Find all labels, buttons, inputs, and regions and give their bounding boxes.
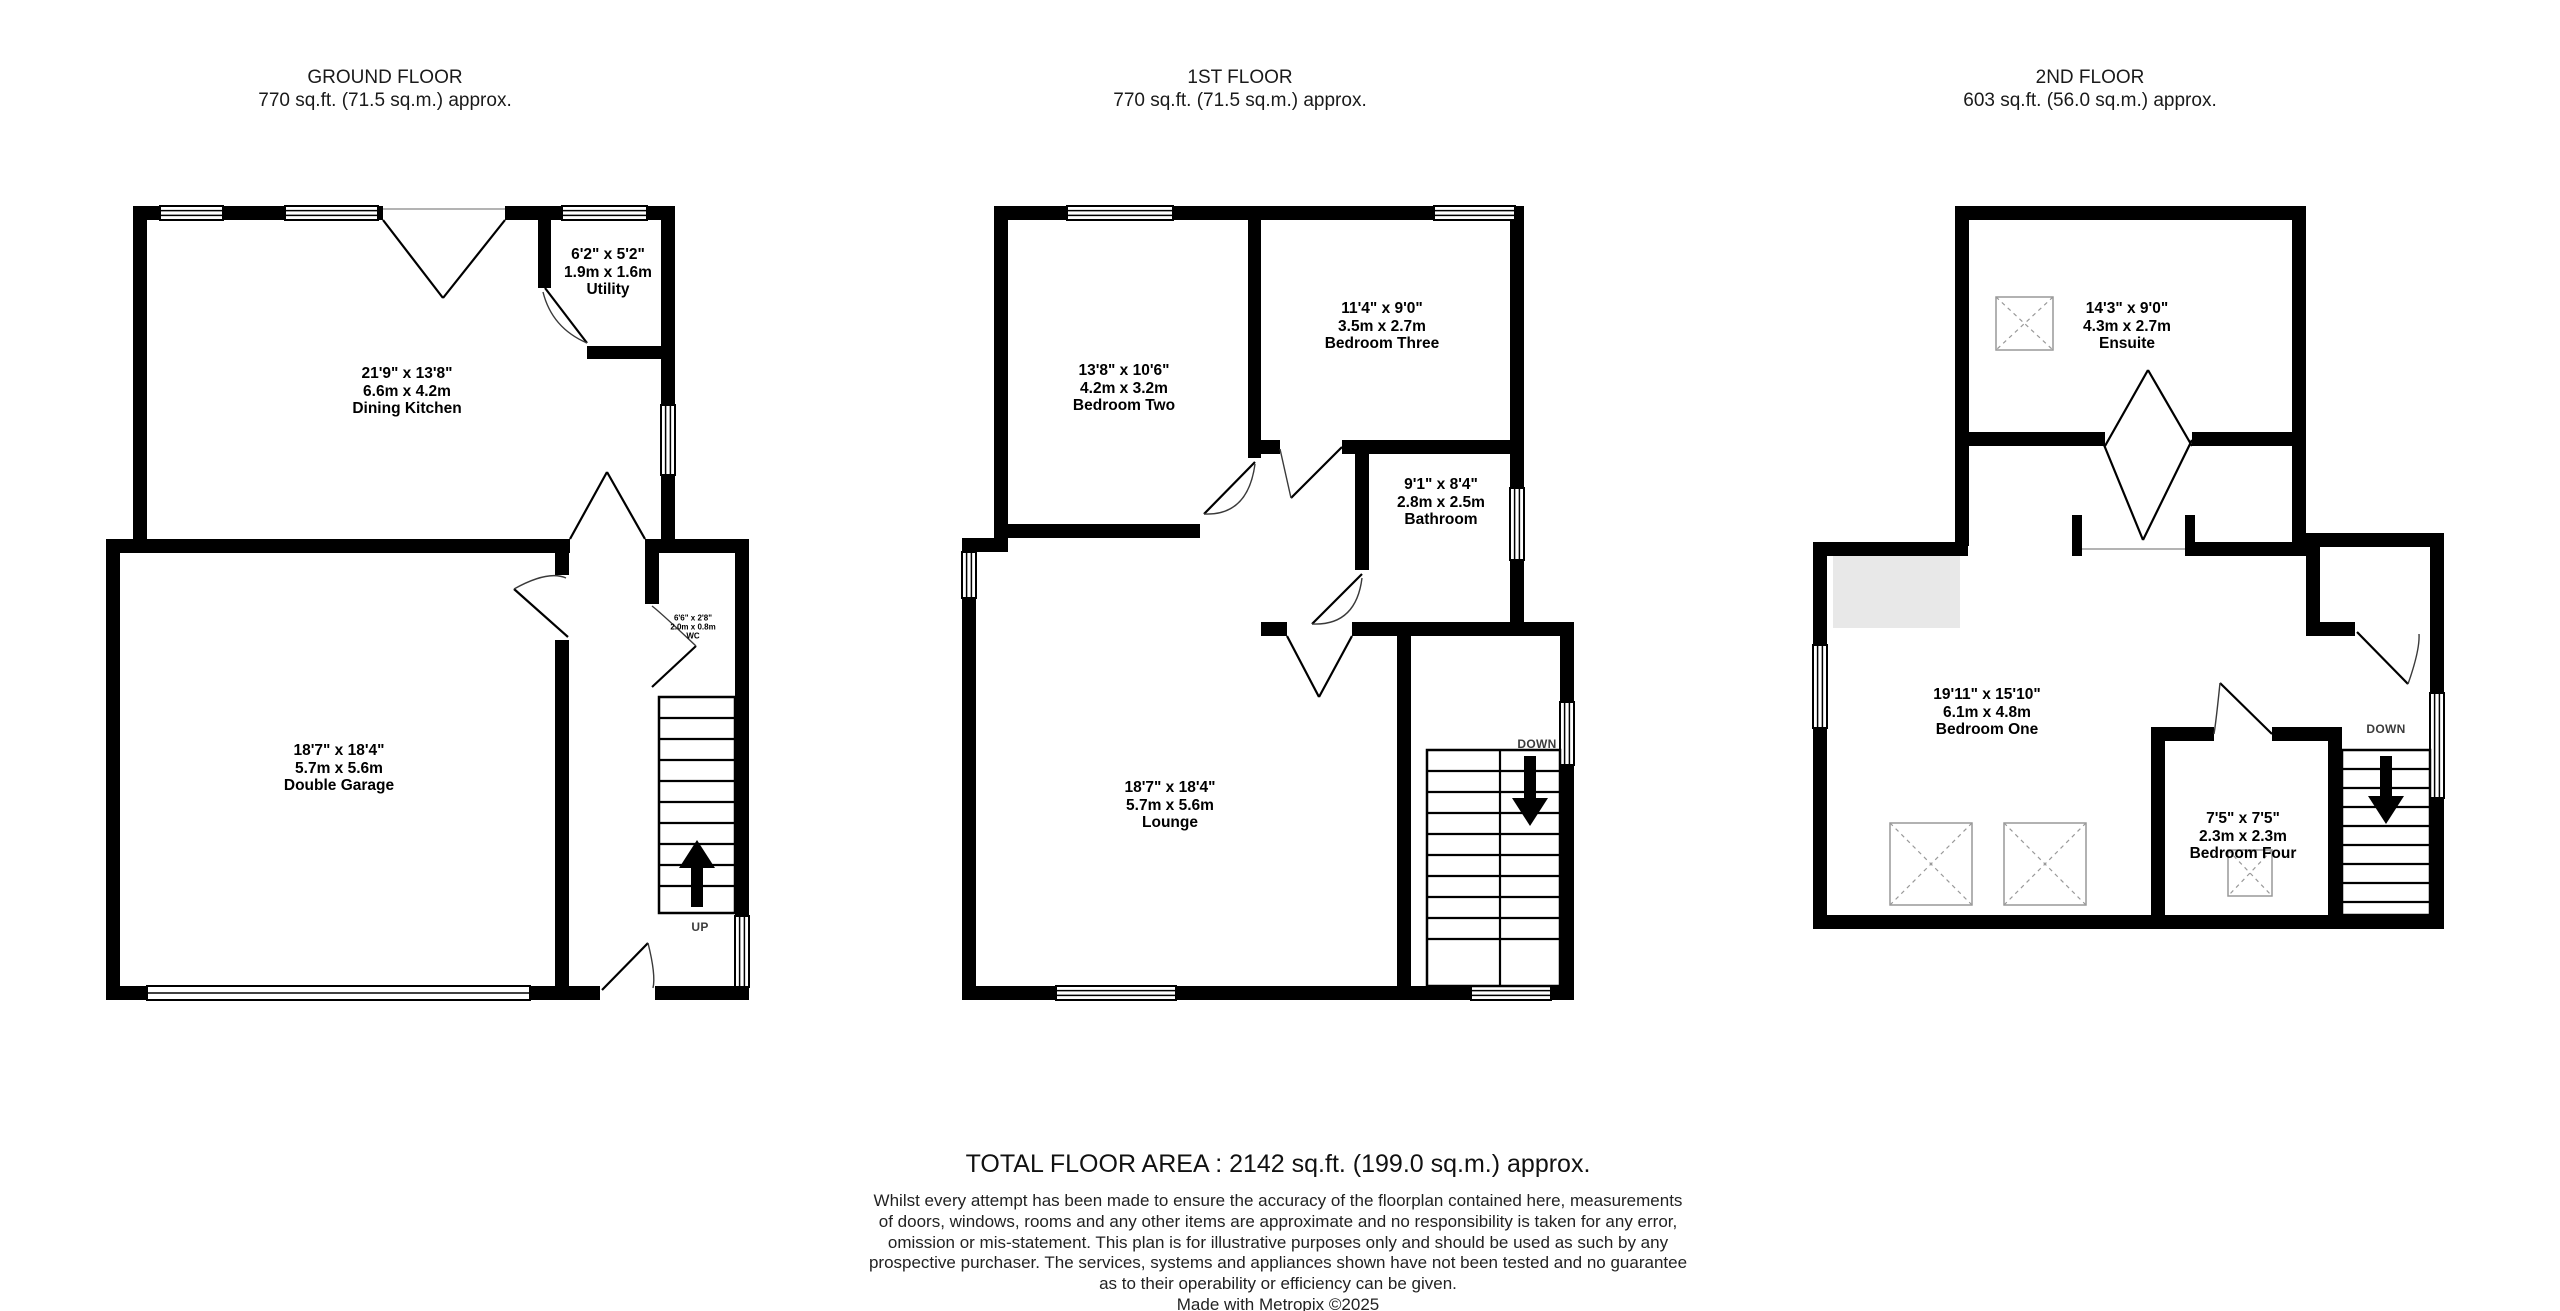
ground-floor-title-area: 770 sq.ft. (71.5 sq.m.) approx. <box>258 89 511 112</box>
floorplan-page: GROUND FLOOR 770 sq.ft. (71.5 sq.m.) app… <box>0 0 2560 1311</box>
room-label-bedroom-four: 7'5" x 7'5" 2.3m x 2.3m Bedroom Four <box>2190 810 2297 863</box>
room-label-lounge: 18'7" x 18'4" 5.7m x 5.6m Lounge <box>1124 779 1215 832</box>
first-floor-title: 1ST FLOOR 770 sq.ft. (71.5 sq.m.) approx… <box>1113 66 1366 112</box>
skylight-icon <box>2004 823 2086 905</box>
room-label-bedroom-one: 19'11" x 15'10" 6.1m x 4.8m Bedroom One <box>1933 686 2040 739</box>
second-floor-stairs <box>2342 750 2430 915</box>
disclaimer-line: omission or mis-statement. This plan is … <box>869 1233 1687 1254</box>
room-label-ensuite: 14'3" x 9'0" 4.3m x 2.7m Ensuite <box>2083 300 2171 353</box>
credit-line: Made with Metropix ©2025 <box>869 1295 1687 1311</box>
footer: TOTAL FLOOR AREA : 2142 sq.ft. (199.0 sq… <box>869 1150 1687 1311</box>
skylight-icon <box>1996 297 2053 350</box>
ground-floor-walls <box>106 206 749 1000</box>
room-label-bathroom: 9'1" x 8'4" 2.8m x 2.5m Bathroom <box>1397 476 1485 529</box>
first-floor-plan <box>950 200 1650 1010</box>
first-floor-title-name: 1ST FLOOR <box>1113 66 1366 89</box>
total-floor-area: TOTAL FLOOR AREA : 2142 sq.ft. (199.0 sq… <box>869 1150 1687 1179</box>
first-floor-doors <box>1204 447 1362 697</box>
ground-floor-title: GROUND FLOOR 770 sq.ft. (71.5 sq.m.) app… <box>258 66 511 112</box>
room-label-wc: 6'6" x 2'8" 2.0m x 0.8m WC <box>670 614 715 641</box>
ground-stair-label: UP <box>691 920 708 934</box>
disclaimer-line: of doors, windows, rooms and any other i… <box>869 1212 1687 1233</box>
second-floor-title-area: 603 sq.ft. (56.0 sq.m.) approx. <box>1963 89 2216 112</box>
ground-floor-plan <box>100 200 780 1010</box>
room-label-double-garage: 18'7" x 18'4" 5.7m x 5.6m Double Garage <box>284 742 394 795</box>
second-floor-title-name: 2ND FLOOR <box>1963 66 2216 89</box>
second-stair-label: DOWN <box>2366 722 2405 736</box>
skylight-icon <box>1890 823 1972 905</box>
reduced-headroom-area <box>1833 556 1960 628</box>
ground-floor-title-name: GROUND FLOOR <box>258 66 511 89</box>
disclaimer-line: prospective purchaser. The services, sys… <box>869 1253 1687 1274</box>
first-floor-title-area: 770 sq.ft. (71.5 sq.m.) approx. <box>1113 89 1366 112</box>
room-label-utility: 6'2" x 5'2" 1.9m x 1.6m Utility <box>564 246 652 299</box>
first-floor-stairs <box>1427 750 1560 986</box>
disclaimer-line: as to their operability or efficiency ca… <box>869 1274 1687 1295</box>
disclaimer-line: Whilst every attempt has been made to en… <box>869 1191 1687 1212</box>
room-label-bedroom-two: 13'8" x 10'6" 4.2m x 3.2m Bedroom Two <box>1073 362 1175 415</box>
room-label-bedroom-three: 11'4" x 9'0" 3.5m x 2.7m Bedroom Three <box>1325 300 1440 353</box>
ground-floor-stairs <box>659 697 735 913</box>
room-label-dining-kitchen: 21'9" x 13'8" 6.6m x 4.2m Dining Kitchen <box>352 365 461 418</box>
first-stair-label: DOWN <box>1517 737 1556 751</box>
second-floor-title: 2ND FLOOR 603 sq.ft. (56.0 sq.m.) approx… <box>1963 66 2216 112</box>
